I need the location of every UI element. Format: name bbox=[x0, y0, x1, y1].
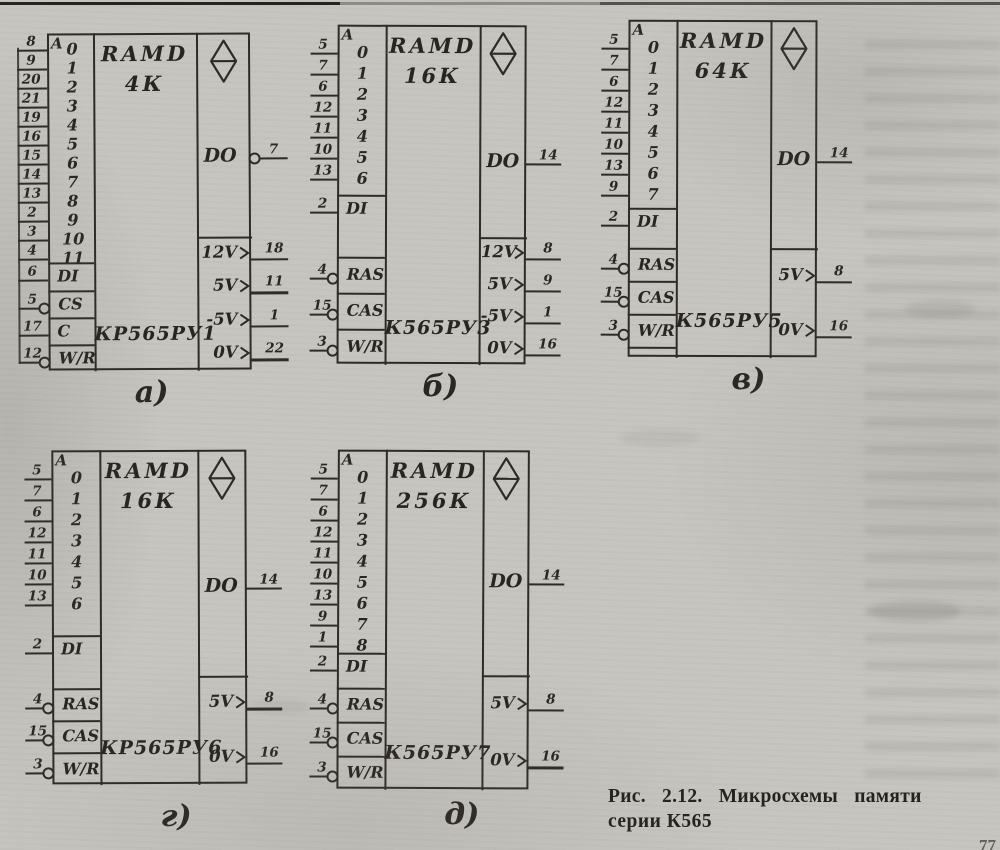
data-in-label: DI bbox=[637, 214, 658, 230]
pin-stub bbox=[18, 307, 39, 309]
inversion-bubble bbox=[38, 302, 50, 314]
address-bit-index: 7 bbox=[351, 617, 373, 633]
address-pin-stub bbox=[311, 477, 338, 479]
chip-diagram-g: A507162123114105136DI2RAS4CAS15W/R3RAMD1… bbox=[9, 450, 296, 848]
data-out-label: DO bbox=[205, 577, 238, 596]
figure-caption-line1: Рис. 2.12. Микросхемы памяти bbox=[608, 786, 988, 808]
address-pin-stub bbox=[24, 478, 51, 480]
control-label-ras: RAS bbox=[62, 696, 99, 712]
address-pin-number: 6 bbox=[309, 505, 338, 519]
power-pin-number: 16 bbox=[534, 751, 568, 765]
inversion-bubble bbox=[39, 356, 51, 368]
inversion-bubble bbox=[327, 737, 339, 749]
address-pin-number: 11 bbox=[308, 547, 337, 561]
address-pin-number: 9 bbox=[308, 610, 337, 624]
pin-number: 6 bbox=[16, 266, 48, 280]
power-pin-stub bbox=[527, 767, 563, 769]
subfigure-letter: а) bbox=[135, 378, 169, 408]
control-label-cas: CAS bbox=[62, 728, 99, 744]
pin-stub bbox=[18, 280, 48, 282]
inversion-bubble bbox=[618, 262, 630, 274]
data-out-stub bbox=[816, 161, 852, 163]
subfigure-letter: г) bbox=[161, 802, 192, 832]
power-pin-number: 8 bbox=[531, 242, 565, 256]
cell-top-border bbox=[52, 752, 100, 754]
address-pin-number: 6 bbox=[308, 81, 337, 95]
cell-top-border bbox=[628, 314, 676, 316]
pin-stub bbox=[310, 212, 337, 214]
power-pin-number: 16 bbox=[531, 338, 565, 352]
address-bit-index: 3 bbox=[351, 533, 373, 549]
chip-part-number: К565РУ7 bbox=[385, 744, 482, 763]
device-type-label: RAMD bbox=[676, 30, 770, 51]
power-pin-stub bbox=[246, 762, 282, 764]
cell-top-border bbox=[48, 262, 94, 264]
address-pin-number: 13 bbox=[308, 165, 337, 179]
power-pin-number: 8 bbox=[534, 693, 568, 707]
address-pin-stub bbox=[310, 645, 337, 647]
scanned-book-page: A809120221319416515614713829310411DI6CS5… bbox=[0, 0, 1000, 850]
figure-caption-line2: серии К565 bbox=[608, 811, 988, 833]
power-pin-stub bbox=[250, 325, 288, 327]
address-pin-stub bbox=[601, 90, 628, 92]
data-in-label: DI bbox=[57, 268, 78, 284]
pin-number: 17 bbox=[16, 320, 48, 334]
cell-top-border bbox=[337, 722, 385, 724]
power-rail-label: 5V bbox=[200, 694, 233, 711]
power-pin-stub bbox=[251, 359, 289, 361]
power-pin-number: 1 bbox=[256, 309, 292, 323]
power-pin-number: 16 bbox=[822, 320, 856, 334]
cell-top-border bbox=[52, 720, 100, 722]
power-rail-label: 0V bbox=[481, 340, 512, 357]
device-type-label: RAMD bbox=[99, 460, 197, 481]
address-bit-index: 4 bbox=[66, 554, 88, 570]
control-label-wr: W/R bbox=[62, 761, 99, 777]
control-label-wr: W/R bbox=[346, 765, 383, 781]
address-bit-index: 5 bbox=[642, 145, 664, 161]
address-pin-number: 13 bbox=[308, 589, 337, 603]
chip-part-number: КР565РУ6 bbox=[100, 739, 198, 758]
cell-top-border bbox=[628, 208, 676, 210]
address-pin-stub bbox=[310, 137, 337, 139]
address-group-header: A bbox=[342, 28, 354, 43]
device-capacity-label: 16К bbox=[99, 490, 197, 511]
power-block-top-border bbox=[479, 237, 527, 239]
data-out-pin-number: 7 bbox=[256, 143, 292, 157]
address-pin-number: 1 bbox=[308, 631, 337, 645]
address-bit-index: 4 bbox=[351, 554, 373, 570]
address-bit-index: 0 bbox=[352, 45, 374, 61]
power-arrow-icon bbox=[239, 312, 250, 331]
address-bit-index: 2 bbox=[642, 82, 664, 98]
power-arrow-icon bbox=[805, 323, 816, 342]
address-bit-index: 2 bbox=[352, 512, 374, 528]
scan-artifact-topline bbox=[0, 2, 1000, 5]
address-pin-number: 11 bbox=[308, 123, 337, 137]
address-bit-index: 3 bbox=[61, 98, 83, 114]
control-label-wr: W/R bbox=[347, 339, 384, 355]
address-pin-number: 3 bbox=[16, 226, 48, 240]
control-label-ras: RAS bbox=[347, 697, 384, 713]
address-pin-number: 7 bbox=[309, 60, 338, 74]
address-bit-index: 5 bbox=[61, 136, 83, 152]
chip-diagram-b: A507162123114105136DI2RAS4CAS15W/R3RAMD1… bbox=[294, 25, 575, 428]
address-pin-number: 19 bbox=[15, 112, 47, 126]
cell-top-border bbox=[49, 344, 95, 346]
address-bit-index: 0 bbox=[65, 470, 87, 486]
pin-stub bbox=[601, 225, 628, 227]
power-rail-label: 0V bbox=[200, 345, 238, 362]
address-pin-number: 5 bbox=[599, 34, 628, 48]
address-bit-index: 5 bbox=[351, 150, 373, 166]
inversion-bubble bbox=[327, 273, 339, 285]
address-bit-index: 1 bbox=[352, 66, 374, 82]
figure-caption: Рис. 2.12. Микросхемы памяти серии К565 bbox=[608, 786, 988, 833]
device-type-label: RAMD bbox=[93, 43, 196, 65]
power-pin-number: 11 bbox=[256, 276, 292, 290]
power-rail-label: 5V bbox=[199, 278, 237, 295]
power-pin-stub bbox=[525, 322, 561, 324]
control-label-cas: CAS bbox=[347, 303, 384, 319]
control-label-ras: RAS bbox=[638, 256, 675, 272]
power-rail-label: 0V bbox=[483, 752, 514, 769]
address-bit-index: 2 bbox=[351, 87, 373, 103]
address-pin-stub bbox=[601, 153, 628, 155]
inversion-bubble bbox=[327, 703, 339, 715]
pin-stub bbox=[309, 775, 327, 777]
inversion-bubble bbox=[327, 309, 339, 321]
address-pin-stub bbox=[310, 582, 337, 584]
inversion-bubble bbox=[326, 771, 338, 783]
cell-top-border bbox=[48, 317, 94, 319]
power-pin-number: 1 bbox=[531, 306, 565, 320]
power-arrow-icon bbox=[239, 245, 250, 264]
address-pin-stub bbox=[601, 69, 628, 71]
chip-diagram-v: A50716212311410513697DI2RAS4CAS15W/R3RAM… bbox=[585, 20, 866, 421]
control-label-c: C bbox=[57, 323, 70, 339]
address-pin-stub bbox=[25, 583, 52, 585]
memory-symbol-icon bbox=[493, 457, 520, 504]
address-bit-index: 7 bbox=[642, 187, 664, 203]
address-pin-number: 20 bbox=[15, 74, 47, 88]
pin-number: 2 bbox=[599, 211, 628, 225]
device-capacity-label: 4К bbox=[93, 73, 196, 95]
power-rail-label: 0V bbox=[200, 748, 233, 765]
pin-stub bbox=[25, 707, 43, 709]
inversion-bubble bbox=[42, 734, 54, 746]
address-pin-stub bbox=[310, 540, 337, 542]
address-bit-index: 3 bbox=[66, 533, 88, 549]
address-pin-number: 6 bbox=[599, 76, 628, 90]
address-bit-index: 1 bbox=[642, 61, 664, 77]
power-pin-stub bbox=[528, 709, 564, 711]
address-pin-number: 5 bbox=[22, 464, 51, 478]
power-rail-label: -5V bbox=[481, 308, 512, 325]
pin-stub bbox=[25, 772, 43, 774]
power-pin-number: 9 bbox=[531, 274, 565, 288]
inversion-bubble bbox=[618, 328, 630, 340]
address-pin-stub bbox=[311, 74, 338, 76]
pin-number: 2 bbox=[308, 655, 337, 669]
address-pin-number: 12 bbox=[308, 102, 337, 116]
address-pin-stub bbox=[311, 519, 338, 521]
data-in-label: DI bbox=[346, 201, 367, 217]
power-rail-label: 5V bbox=[484, 695, 515, 712]
power-pin-stub bbox=[250, 292, 288, 294]
data-out-pin-number: 14 bbox=[822, 147, 856, 161]
address-pin-number: 9 bbox=[15, 55, 47, 69]
pin-stub bbox=[19, 361, 40, 363]
address-pin-stub bbox=[311, 53, 338, 55]
address-bit-index: 10 bbox=[62, 231, 84, 247]
power-block-top-border bbox=[197, 236, 252, 238]
address-pin-stub bbox=[601, 48, 628, 50]
pin-stub bbox=[310, 741, 328, 743]
address-pin-stub bbox=[25, 562, 52, 564]
inversion-bubble bbox=[618, 295, 630, 307]
data-in-label: DI bbox=[61, 641, 82, 657]
address-group-header: A bbox=[342, 453, 354, 468]
memory-symbol-icon bbox=[208, 457, 235, 504]
power-arrow-icon bbox=[516, 754, 527, 773]
pin-stub bbox=[310, 278, 328, 280]
power-pin-stub bbox=[250, 258, 288, 260]
address-pin-number: 15 bbox=[16, 150, 48, 164]
data-out-stub bbox=[246, 588, 282, 590]
scan-smudge bbox=[620, 430, 700, 446]
address-pin-stub bbox=[601, 132, 628, 134]
cell-top-border bbox=[52, 688, 100, 690]
cell-top-border bbox=[628, 248, 676, 250]
pin-number: 2 bbox=[23, 638, 52, 652]
power-block-top-border bbox=[770, 248, 818, 250]
address-pin-stub bbox=[310, 179, 337, 181]
power-rail-label: -5V bbox=[199, 311, 237, 328]
subfigure-letter: в) bbox=[732, 365, 766, 395]
power-pin-number: 16 bbox=[252, 746, 286, 760]
scan-smudge bbox=[905, 300, 975, 318]
data-out-stub bbox=[259, 157, 288, 159]
data-out-pin-number: 14 bbox=[534, 569, 568, 583]
address-pin-number: 16 bbox=[15, 131, 47, 145]
address-pin-number: 7 bbox=[309, 484, 338, 498]
address-pin-stub bbox=[601, 111, 628, 113]
power-pin-stub bbox=[816, 281, 852, 283]
cell-top-border bbox=[337, 293, 385, 295]
address-pin-stub bbox=[24, 499, 51, 501]
pin-stub bbox=[19, 334, 49, 336]
cell-top-border bbox=[337, 756, 385, 758]
control-label-ras: RAS bbox=[347, 267, 384, 283]
pin-stub bbox=[310, 669, 337, 671]
address-pin-stub bbox=[25, 541, 52, 543]
data-out-label: DO bbox=[204, 147, 237, 166]
power-pin-number: 22 bbox=[257, 343, 293, 357]
power-pin-number: 8 bbox=[822, 265, 856, 279]
power-block-top-border bbox=[198, 676, 248, 678]
address-bit-index: 6 bbox=[351, 171, 373, 187]
address-pin-number: 6 bbox=[23, 506, 52, 520]
cell-top-border bbox=[337, 329, 385, 331]
control-label-cas: CAS bbox=[638, 289, 675, 305]
data-out-stub bbox=[525, 163, 561, 165]
address-pin-number: 12 bbox=[23, 527, 52, 541]
pin-stub bbox=[310, 350, 328, 352]
power-rail-label: 0V bbox=[772, 322, 803, 339]
power-arrow-icon bbox=[514, 277, 525, 296]
device-type-label: RAMD bbox=[386, 35, 480, 56]
power-arrow-icon bbox=[514, 245, 525, 264]
chip-part-number: КР565РУ1 bbox=[94, 325, 197, 345]
address-pin-number: 5 bbox=[309, 39, 338, 53]
power-arrow-icon bbox=[514, 341, 525, 360]
address-bit-index: 6 bbox=[351, 596, 373, 612]
cell-top-border bbox=[628, 281, 676, 283]
pin-stub bbox=[25, 739, 43, 741]
inversion-bubble bbox=[42, 767, 54, 779]
chip-diagram-d: A5071621231141051369718DI2RAS4CAS15W/R3R… bbox=[294, 449, 579, 850]
power-arrow-icon bbox=[240, 346, 251, 365]
chip-diagram-a: A809120221319416515614713829310411DI6CS5… bbox=[1, 32, 303, 434]
address-pin-number: 4 bbox=[16, 245, 48, 259]
address-bit-index: 2 bbox=[61, 79, 83, 95]
data-out-pin-number: 14 bbox=[252, 574, 286, 588]
address-bit-index: 4 bbox=[61, 117, 83, 133]
address-pin-stub bbox=[25, 604, 52, 606]
power-pin-stub bbox=[525, 258, 561, 260]
pin-stub bbox=[310, 707, 328, 709]
power-block-top-border bbox=[482, 675, 530, 677]
power-rail-label: 5V bbox=[772, 267, 803, 284]
address-pin-number: 21 bbox=[15, 93, 47, 107]
cell-top-border bbox=[52, 635, 100, 637]
address-bit-index: 6 bbox=[66, 596, 88, 612]
cell-top-border bbox=[337, 195, 385, 197]
power-arrow-icon bbox=[239, 279, 250, 298]
address-bit-index: 1 bbox=[65, 491, 87, 507]
address-bit-index: 4 bbox=[351, 129, 373, 145]
power-rail-label: 12V bbox=[199, 244, 237, 261]
address-bit-index: 0 bbox=[61, 41, 83, 57]
address-pin-number: 12 bbox=[599, 97, 628, 111]
address-bit-index: 0 bbox=[352, 470, 374, 486]
cell-top-border bbox=[337, 653, 385, 655]
page-number: 77 bbox=[979, 836, 996, 850]
address-bit-index: 4 bbox=[642, 124, 664, 140]
address-bit-index: 7 bbox=[62, 174, 84, 190]
power-pin-number: 18 bbox=[256, 242, 292, 256]
pin-stub bbox=[25, 652, 52, 654]
power-arrow-icon bbox=[517, 696, 528, 715]
address-pin-number: 12 bbox=[308, 526, 337, 540]
address-bit-index: 2 bbox=[66, 512, 88, 528]
address-pin-number: 7 bbox=[599, 55, 628, 69]
address-group-header: A bbox=[55, 453, 67, 468]
address-pin-number: 11 bbox=[599, 118, 628, 132]
address-pin-stub bbox=[310, 603, 337, 605]
address-bit-index: 1 bbox=[352, 491, 374, 507]
control-label-wr: W/R bbox=[59, 350, 96, 366]
cell-bottom-border bbox=[628, 347, 676, 349]
power-pin-stub bbox=[525, 290, 561, 292]
address-pin-number: 7 bbox=[22, 485, 51, 499]
device-capacity-label: 64К bbox=[676, 60, 770, 81]
address-pin-number: 9 bbox=[599, 181, 628, 195]
address-bit-index: 9 bbox=[62, 212, 84, 228]
address-pin-number: 10 bbox=[23, 569, 52, 583]
power-arrow-icon bbox=[805, 268, 816, 287]
address-bit-index: 3 bbox=[642, 103, 664, 119]
power-rail-label: 12V bbox=[481, 244, 512, 261]
address-pin-stub bbox=[601, 174, 628, 176]
address-pin-number: 10 bbox=[308, 144, 337, 158]
address-group-header: A bbox=[632, 23, 644, 38]
address-pin-number: 10 bbox=[599, 139, 628, 153]
address-pin-stub bbox=[25, 520, 52, 522]
chip-part-number: К565РУ5 bbox=[676, 312, 770, 331]
address-bit-index: 6 bbox=[62, 155, 84, 171]
cell-top-border bbox=[337, 688, 385, 690]
address-pin-stub bbox=[311, 498, 338, 500]
address-bit-index: 5 bbox=[66, 575, 88, 591]
address-pin-number: 11 bbox=[23, 548, 52, 562]
memory-symbol-icon bbox=[490, 32, 517, 79]
memory-symbol-icon bbox=[780, 27, 807, 74]
pin-stub bbox=[310, 314, 328, 316]
address-bit-index: 3 bbox=[351, 108, 373, 124]
pin-stub bbox=[601, 267, 619, 269]
address-pin-number: 8 bbox=[15, 36, 47, 50]
address-pin-stub bbox=[310, 624, 337, 626]
control-label-cas: CAS bbox=[347, 731, 384, 747]
power-arrow-icon bbox=[235, 695, 246, 714]
address-bit-index: 8 bbox=[351, 638, 373, 654]
power-pin-stub bbox=[525, 354, 561, 356]
inversion-bubble bbox=[42, 702, 54, 714]
address-pin-number: 10 bbox=[308, 568, 337, 582]
address-pin-number: 2 bbox=[16, 207, 48, 221]
chip-part-number: К565РУ3 bbox=[385, 319, 479, 338]
power-arrow-icon bbox=[235, 749, 246, 768]
data-in-label: DI bbox=[346, 659, 367, 675]
memory-symbol-icon bbox=[209, 40, 236, 87]
pin-stub bbox=[601, 300, 619, 302]
address-pin-stub bbox=[310, 116, 337, 118]
address-bit-index: 0 bbox=[642, 40, 664, 56]
power-rail-label: 5V bbox=[481, 276, 512, 293]
device-type-label: RAMD bbox=[386, 460, 483, 481]
power-pin-stub bbox=[246, 708, 282, 710]
address-bit-index: 1 bbox=[61, 60, 83, 76]
address-pin-stub bbox=[310, 158, 337, 160]
address-pin-stub bbox=[310, 95, 337, 97]
data-out-stub bbox=[528, 583, 564, 585]
device-capacity-label: 256К bbox=[386, 490, 483, 511]
data-out-label: DO bbox=[777, 150, 810, 169]
pin-number: 2 bbox=[308, 198, 337, 212]
data-out-label: DO bbox=[486, 152, 519, 171]
device-capacity-label: 16К bbox=[385, 65, 479, 86]
inversion-bubble bbox=[327, 345, 339, 357]
subfigure-letter: б) bbox=[422, 372, 458, 402]
power-arrow-icon bbox=[514, 309, 525, 328]
address-pin-number: 13 bbox=[599, 160, 628, 174]
power-pin-number: 8 bbox=[252, 692, 286, 706]
address-pin-number: 14 bbox=[16, 169, 48, 183]
control-label-cs: CS bbox=[58, 296, 82, 312]
cell-top-border bbox=[337, 257, 385, 259]
